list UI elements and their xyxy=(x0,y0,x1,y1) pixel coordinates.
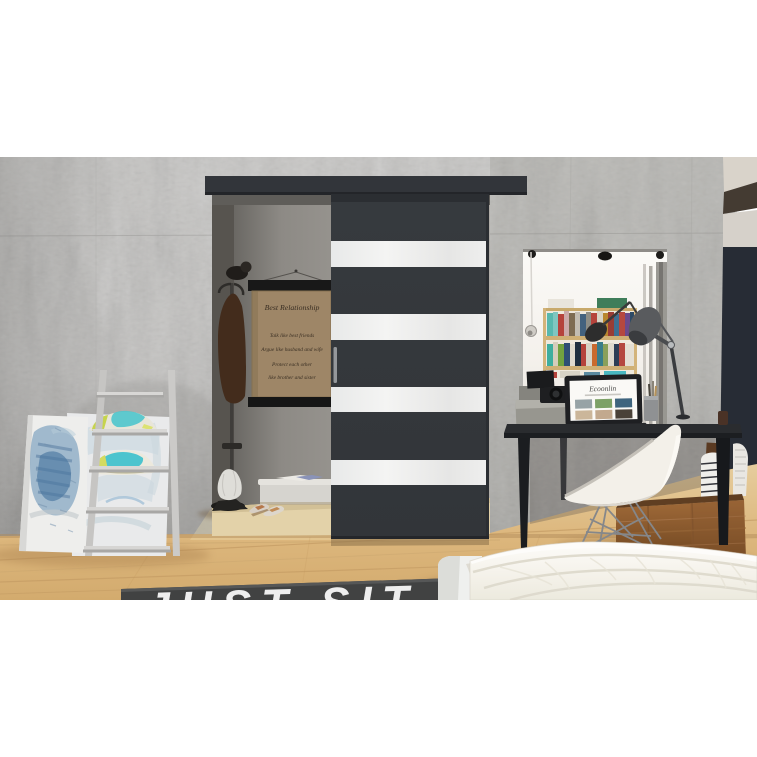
svg-text:Argue like husband and wife: Argue like husband and wife xyxy=(260,346,323,353)
svg-text:Talk like best friends: Talk like best friends xyxy=(270,332,315,339)
svg-text:Ecoonlin: Ecoonlin xyxy=(588,384,617,394)
svg-text:JUST SIT: JUST SIT xyxy=(145,577,419,634)
svg-text:Best Relationship: Best Relationship xyxy=(265,303,320,312)
svg-text:Protect each other: Protect each other xyxy=(271,362,313,368)
svg-text:like brother and sister: like brother and sister xyxy=(268,375,316,381)
